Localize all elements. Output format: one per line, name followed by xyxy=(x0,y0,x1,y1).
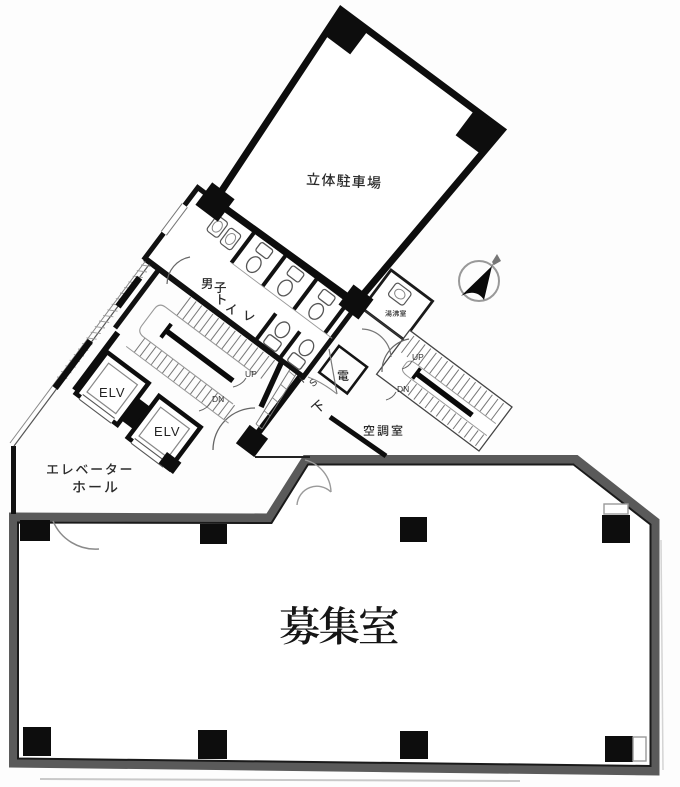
svg-text:DN: DN xyxy=(397,384,409,394)
svg-text:UP: UP xyxy=(412,352,424,362)
svg-text:ELV: ELV xyxy=(99,385,126,400)
svg-text:DN: DN xyxy=(212,394,224,404)
svg-text:ELV: ELV xyxy=(154,424,181,439)
svg-text:UP: UP xyxy=(245,369,257,379)
